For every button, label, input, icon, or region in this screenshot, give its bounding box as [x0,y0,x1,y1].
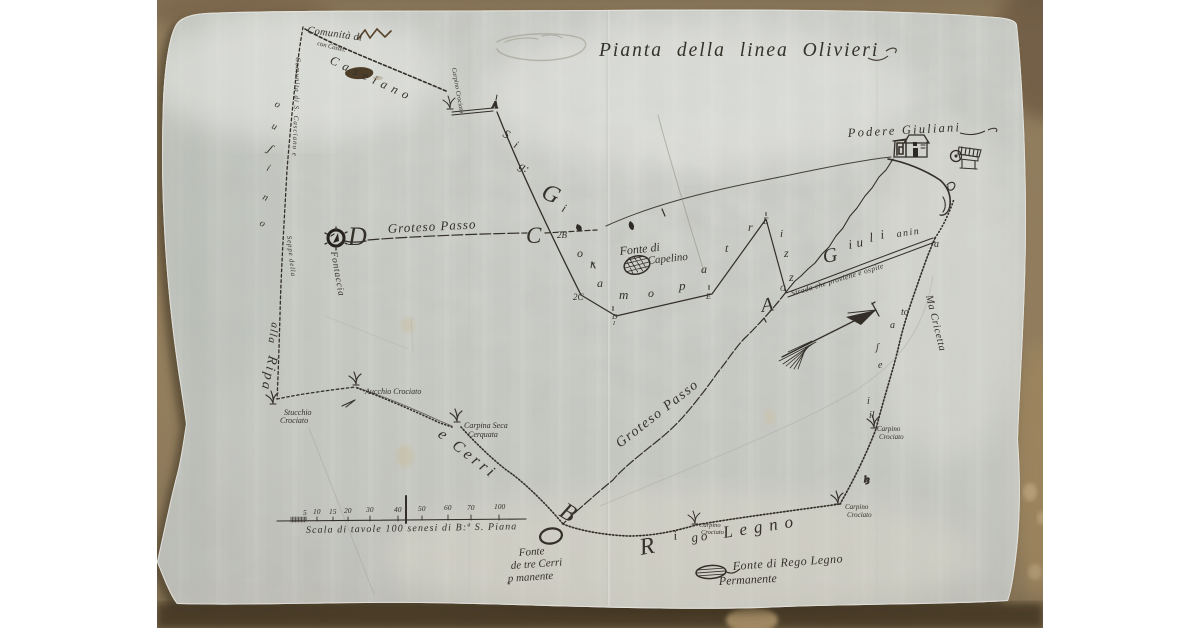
svg-text:C: C [526,223,542,248]
svg-text:40: 40 [394,505,402,514]
svg-text:Carpino: Carpino [845,503,869,511]
svg-text:o: o [577,246,583,260]
svg-text:A: A [491,100,498,110]
svg-text:5: 5 [303,508,307,517]
svg-text:2B: 2B [557,230,568,240]
svg-text:Carpino: Carpino [877,425,901,433]
svg-text:15: 15 [329,507,337,516]
svg-text:z: z [788,270,794,284]
svg-text:2C: 2C [573,292,585,302]
svg-text:lȝ: lȝ [864,475,869,484]
svg-text:to: to [901,307,909,318]
svg-text:Carpina Seca: Carpina Seca [464,421,508,430]
svg-text:o: o [648,286,654,300]
svg-text:a: a [890,320,895,331]
svg-text:G: G [780,284,786,293]
svg-text:z: z [783,246,789,260]
svg-text:a: a [701,262,707,276]
svg-text:m: m [619,287,628,302]
svg-text:E: E [705,292,711,301]
svg-text:go: go [690,527,711,544]
svg-text:Cerquata: Cerquata [468,430,498,439]
svg-text:D: D [611,312,618,321]
svg-text:p: p [678,278,686,293]
svg-text:70: 70 [467,503,475,512]
svg-text:r: r [590,257,595,271]
svg-text:30: 30 [365,505,374,514]
svg-text:100: 100 [494,502,506,511]
svg-text:i: i [780,228,783,240]
svg-text:a: a [597,276,603,290]
svg-text:50: 50 [418,504,426,513]
svg-text:Crociato: Crociato [847,511,872,519]
svg-text:60: 60 [444,503,452,512]
svg-text:Crociato: Crociato [280,416,308,425]
svg-text:Pianta della linea Olivieri: Pianta della linea Olivieri [598,40,879,61]
svg-text:i: i [867,396,870,407]
svg-text:Crociato: Crociato [879,433,904,441]
svg-text:a: a [934,239,939,250]
svg-text:20: 20 [344,506,352,515]
svg-text:r: r [748,220,753,234]
svg-text:10: 10 [313,507,321,516]
svg-text:il: il [869,410,875,421]
svg-text:D: D [347,222,367,251]
svg-text:E: E [762,216,769,226]
svg-text:e: e [878,360,883,371]
svg-text:Aucchio Crociato: Aucchio Crociato [364,387,421,396]
